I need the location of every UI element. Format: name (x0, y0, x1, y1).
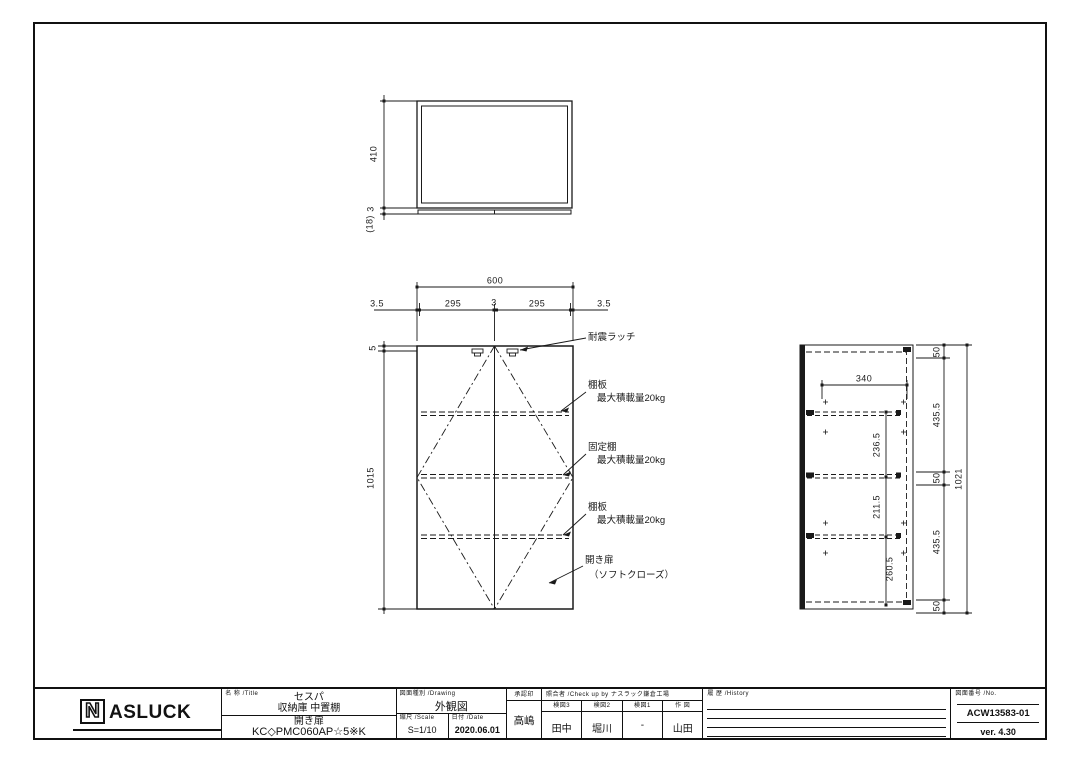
history-line (707, 727, 946, 728)
date-header: 日付 /Date (452, 715, 484, 722)
dimension-ticks (383, 100, 969, 615)
product-series: セスパ (222, 692, 395, 704)
leader-arrowheads (520, 347, 571, 585)
drawing-header: 図面種別 /Drawing (400, 691, 456, 698)
cad-linework (0, 0, 1080, 764)
dim-front-p1: 295 (445, 300, 461, 309)
approval-cell: 承認印 高嶋 (506, 689, 541, 738)
dim-front-p2: 295 (529, 300, 545, 309)
callout-shelf1-name: 棚板 (588, 380, 607, 391)
product-code: KC◇PMC060AP☆5※K (222, 727, 395, 739)
approval-name: 高嶋 (507, 701, 541, 728)
dim-side-c3: 50 (933, 473, 942, 484)
callout-shelf2-name: 棚板 (588, 502, 607, 513)
dim-side-height: 1021 (955, 468, 964, 490)
date-value: 2020.06.01 (449, 725, 507, 735)
dim-side-c4: 435.5 (933, 530, 942, 555)
dim-side-s1: 236.5 (873, 433, 882, 458)
drawing-cell: 図面種別 /Drawing 外観図 縮尺 /Scale S=1/10 日付 /D… (396, 689, 507, 738)
scale-header: 縮尺 /Scale (400, 715, 435, 722)
leader-lines (520, 338, 586, 583)
callout-fixed-name: 固定棚 (588, 442, 617, 453)
drawing-sheet: 410 3 (18) 600 3.5 295 3 295 3.5 5 1015 … (0, 0, 1080, 764)
number-rule (957, 704, 1039, 705)
dim-top-door: (18) (366, 215, 375, 233)
dim-side-s2: 211.5 (873, 495, 882, 519)
shelf-pin-marks (823, 400, 906, 556)
dim-side-c1: 50 (933, 347, 942, 358)
number-rule (957, 722, 1039, 723)
check-cell: 照合者 /Check up by ナスラック鎌倉工場 検図3 検図2 検図1 作… (541, 689, 702, 738)
scale-value: S=1/10 (397, 725, 448, 735)
check-col-header: 検図3 (542, 701, 581, 711)
dim-front-width: 600 (487, 277, 503, 286)
logo-n-box: N (80, 699, 105, 724)
logo-cell: N ASLUCK (35, 689, 221, 738)
history-cell: 履 歴 /History (702, 689, 950, 738)
check-name: - (622, 712, 662, 738)
dim-front-top: 5 (369, 345, 378, 350)
callout-door-name: 開き扉 (585, 555, 614, 566)
check-name: 山田 (662, 712, 702, 738)
check-subheaders: 検図3 検図2 検図1 作 図 (542, 701, 702, 712)
dim-top-gap: 3 (367, 206, 376, 211)
drawing-number: ACW13583-01 (951, 708, 1045, 719)
history-line (707, 736, 946, 737)
dim-side-c2: 435.5 (933, 403, 942, 428)
callout-shelf2-load: 最大積載量20kg (597, 515, 665, 526)
callout-latch: 耐震ラッチ (588, 332, 636, 343)
nasluck-logo: ASLUCK (109, 702, 191, 724)
logo-underline (73, 729, 221, 731)
callout-door-type: （ソフトクローズ） (589, 570, 674, 581)
check-col-header: 検図1 (622, 701, 662, 711)
logo-n: N (85, 700, 99, 722)
dim-top-depth: 410 (370, 146, 379, 162)
dim-side-c5: 50 (933, 601, 942, 612)
dim-front-height: 1015 (367, 467, 376, 489)
dim-side-s3: 260.5 (886, 557, 895, 582)
dim-front-m1: 3.5 (370, 300, 384, 309)
product-category: 収納庫 中置棚 (222, 703, 395, 715)
approval-header: 承認印 (507, 689, 541, 701)
history-header: 履 歴 /History (707, 691, 749, 698)
date-box: 日付 /Date 2020.06.01 (448, 713, 507, 738)
callout-fixed-load: 最大積載量20kg (597, 455, 665, 466)
check-col-header: 検図2 (581, 701, 621, 711)
drawing-type: 外観図 (397, 698, 507, 714)
check-col-header: 作 図 (662, 701, 702, 711)
title-cell: 名 称 /Title セスパ 収納庫 中置棚 開き扉 KC◇PMC060AP☆5… (221, 689, 395, 738)
dim-front-gap: 3 (491, 299, 496, 308)
history-line (707, 709, 946, 710)
top-view-linework (380, 95, 572, 220)
callout-shelf1-load: 最大積載量20kg (597, 393, 665, 404)
check-name: 田中 (542, 712, 581, 738)
front-view-linework (374, 282, 608, 614)
check-header: 照合者 /Check up by ナスラック鎌倉工場 (542, 689, 702, 701)
check-values: 田中 堀川 - 山田 (542, 712, 702, 738)
drawing-version: ver. 4.30 (951, 727, 1045, 737)
number-header: 図面番号 /No. (955, 691, 996, 698)
dim-front-m2: 3.5 (597, 300, 611, 309)
check-name: 堀川 (581, 712, 621, 738)
dim-side-width: 340 (856, 375, 872, 384)
number-cell: 図面番号 /No. ACW13583-01 ver. 4.30 (950, 689, 1045, 738)
title-block: N ASLUCK 名 称 /Title セスパ 収納庫 中置棚 開き扉 KC◇P… (33, 687, 1047, 740)
scale-box: 縮尺 /Scale S=1/10 (397, 713, 448, 738)
history-line (707, 718, 946, 719)
